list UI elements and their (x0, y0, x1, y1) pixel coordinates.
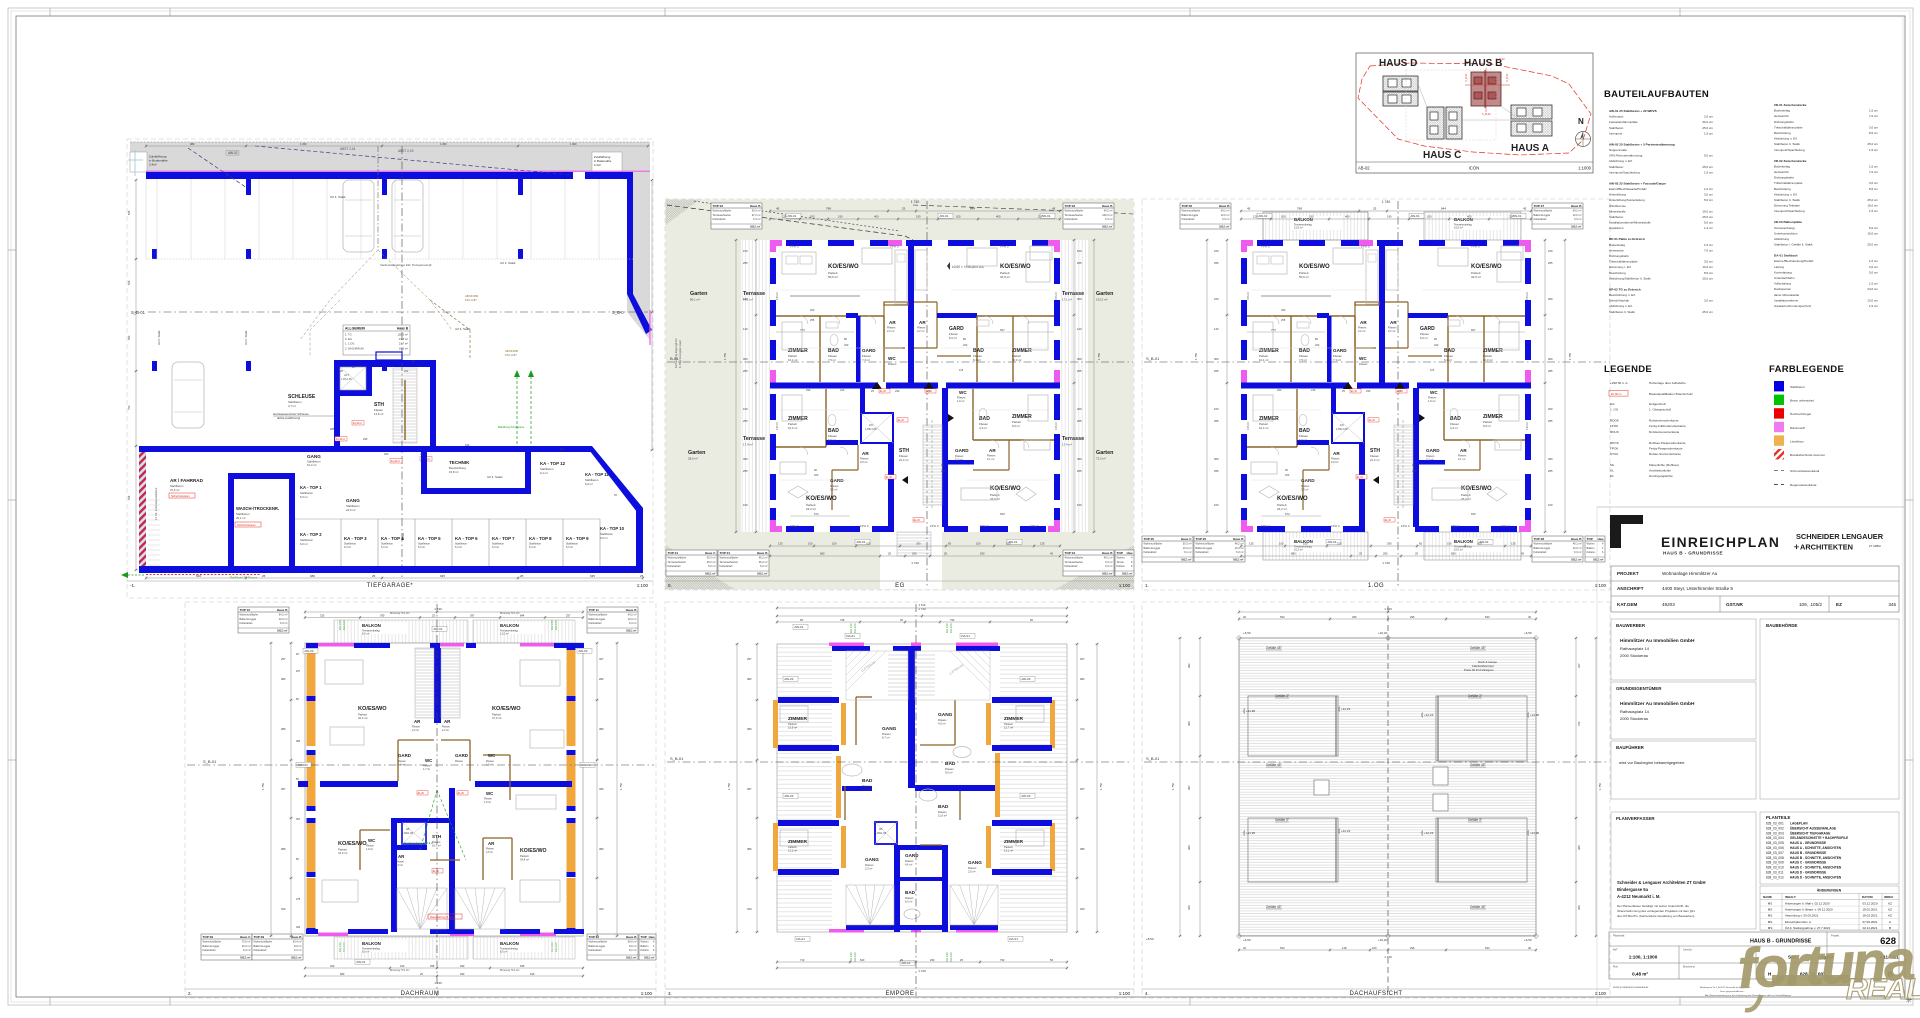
svg-text:6,3 m²: 6,3 m² (1236, 550, 1243, 554)
svg-text:LEGENDE: LEGENDE (1604, 364, 1652, 375)
svg-text:4.: 4. (1145, 991, 1149, 996)
svg-text:TOP 11: TOP 11 (589, 608, 600, 612)
svg-text:7,0 cm: 7,0 cm (1704, 248, 1714, 252)
svg-text:9,6 m²: 9,6 m² (1012, 424, 1020, 428)
svg-text:630: 630 (980, 552, 985, 556)
svg-text:320: 320 (1080, 907, 1085, 911)
svg-text:844: 844 (970, 207, 975, 211)
svg-text:Wohnanlage Himmlitzer Au: Wohnanlage Himmlitzer Au (1662, 571, 1718, 576)
svg-text:Innenputz/Spachtelung: Innenputz/Spachtelung (1774, 209, 1805, 213)
svg-text:Abdichtung/Stahlbeton lt. Stat: Abdichtung/Stahlbeton lt. Statik (1609, 276, 1651, 280)
svg-text:25: 25 (902, 207, 906, 211)
svg-text:625: 625 (127, 210, 131, 215)
svg-text:S_B-01: S_B-01 (1146, 756, 1160, 761)
svg-text:143: 143 (743, 327, 748, 331)
svg-text:148: 148 (1342, 946, 1347, 950)
svg-text:255: 255 (1214, 469, 1219, 473)
svg-text:Fassadendämmplatte: Fassadendämmplatte (1609, 120, 1638, 124)
svg-text:FPH 0: FPH 0 (1525, 422, 1529, 430)
svg-text:2,5 m²: 2,5 m² (968, 870, 975, 874)
svg-text:3.: 3. (668, 991, 672, 996)
svg-text:KA - TOP 4: KA - TOP 4 (381, 536, 404, 541)
svg-text:GELÄNDESCHNITTE + BACHPROFILE: GELÄNDESCHNITTE + BACHPROFILE (1790, 836, 1848, 840)
svg-text:40: 40 (1243, 946, 1246, 950)
svg-text:1,68x1,65: 1,68x1,65 (402, 832, 414, 835)
svg-text:EI₂30-C: EI₂30-C (336, 437, 345, 441)
svg-text:4,3 m²: 4,3 m² (1450, 426, 1458, 430)
svg-text:Haus B: Haus B (1571, 537, 1582, 541)
svg-text:FPH 0: FPH 0 (1246, 292, 1250, 300)
svg-text:1 750: 1 750 (1598, 783, 1602, 790)
svg-text:386: 386 (747, 847, 752, 851)
svg-text:EI₂30: EI₂30 (1369, 419, 1376, 422)
svg-text:722: 722 (1577, 721, 1581, 726)
svg-text:Gipskarton: Gipskarton (1609, 226, 1624, 230)
svg-text:INHALT: INHALT (1785, 895, 1796, 899)
svg-text:S_B-01: S_B-01 (670, 756, 684, 761)
svg-text:S_B-01: S_B-01 (1464, 73, 1468, 82)
svg-text:10,4 m²: 10,4 m² (1259, 426, 1269, 430)
svg-text:Abdichtung n. Erf.: Abdichtung n. Erf. (1774, 192, 1798, 196)
svg-text:Rathausplatz 14: Rathausplatz 14 (1620, 646, 1650, 651)
svg-text:Trittschalldämmplatte: Trittschalldämmplatte (1609, 260, 1638, 264)
svg-text:LB: LB (879, 827, 883, 831)
svg-text:135: 135 (1511, 542, 1516, 546)
svg-text:115: 115 (1430, 368, 1435, 372)
svg-text:290: 290 (912, 552, 917, 556)
svg-text:6,1 m²: 6,1 m² (973, 358, 981, 362)
svg-text:DL: DL (1610, 474, 1614, 478)
svg-text:HAUS D: HAUS D (1379, 58, 1417, 69)
svg-text:2000 Stockerau: 2000 Stockerau (1620, 653, 1648, 658)
svg-text:5,0 cm: 5,0 cm (1704, 154, 1714, 158)
svg-text:327: 327 (1577, 663, 1581, 668)
svg-text:285: 285 (330, 427, 335, 431)
svg-text:6,3 m²: 6,3 m² (1105, 564, 1112, 568)
svg-text:Brüstung H=1,0m: Brüstung H=1,0m (390, 969, 410, 972)
svg-text:7,0 cm: 7,0 cm (1869, 114, 1879, 118)
svg-text:6,0 m²: 6,0 m² (300, 495, 308, 499)
svg-text:Garten: Garten (690, 291, 707, 297)
svg-text:10,0 m²: 10,0 m² (1454, 548, 1463, 552)
svg-text:109, .105/2: 109, .105/2 (1799, 602, 1822, 607)
svg-text:26,0 m²: 26,0 m² (1461, 497, 1471, 501)
svg-text:Haus B: Haus B (1102, 204, 1113, 208)
svg-text:Haus B: Haus B (757, 551, 768, 555)
svg-text:5,0 cm: 5,0 cm (1869, 270, 1879, 274)
svg-text:290: 290 (895, 389, 900, 393)
svg-text:+12,23: +12,23 (1341, 829, 1351, 833)
svg-text:6,3 m²: 6,3 m² (1574, 550, 1581, 554)
svg-text:6,6 m²: 6,6 m² (1299, 438, 1307, 442)
svg-text:GANG: GANG (307, 454, 321, 459)
svg-text:Unterkonstruktion: Unterkonstruktion (1774, 231, 1798, 235)
svg-text:49,1 m²: 49,1 m² (1573, 542, 1582, 546)
svg-text:KO/ES/WO: KO/ES/WO (1000, 264, 1031, 270)
svg-text:FPH 0: FPH 0 (1261, 245, 1270, 249)
svg-text:DA-01: DA-01 (796, 937, 805, 941)
svg-text:Hinterlüftung/Konterlattung: Hinterlüftung/Konterlattung (1609, 198, 1645, 202)
svg-text:LIFT: LIFT (344, 373, 350, 377)
svg-text:5,0 cm: 5,0 cm (1869, 226, 1879, 230)
svg-text:N: N (1578, 117, 1584, 126)
svg-text:Durchgangslichte: Durchgangslichte (1649, 474, 1673, 478)
svg-text:6,0 m²: 6,0 m² (949, 336, 957, 340)
svg-text:Fliesen: Fliesen (1301, 484, 1310, 488)
svg-text:162,1 m²: 162,1 m² (1102, 572, 1113, 576)
svg-text:LAGEPLAN: LAGEPLAN (1790, 822, 1808, 826)
svg-text:2,0 cm: 2,0 cm (1704, 115, 1714, 119)
svg-text:Fliesen: Fliesen (1359, 362, 1368, 366)
svg-text:FPH 0: FPH 0 (1000, 245, 1009, 249)
svg-text:5,2 m²: 5,2 m² (955, 458, 962, 462)
svg-text:Wohnnutzfläche: Wohnnutzfläche (668, 556, 687, 560)
svg-text:Stahlbeton: Stahlbeton (1609, 165, 1624, 169)
svg-text:S_B-01: S_B-01 (1146, 356, 1160, 361)
svg-text:45,2 m²: 45,2 m² (707, 560, 716, 564)
svg-text:25: 25 (372, 574, 376, 578)
svg-text:2,2 m²: 2,2 m² (1388, 329, 1395, 333)
svg-text:Planinhalt: Planinhalt (1613, 934, 1625, 938)
svg-text:21,3 m²: 21,3 m² (899, 458, 909, 462)
svg-text:Fliesen: Fliesen (862, 784, 871, 788)
svg-text:1.OG: 1.OG (1368, 583, 1384, 589)
svg-text:EI₂30-C: EI₂30-C (391, 459, 400, 463)
svg-text:296: 296 (1352, 615, 1357, 619)
svg-text:6,3 m²: 6,3 m² (280, 621, 287, 625)
svg-text:490: 490 (1548, 457, 1553, 461)
svg-text:Kellerabteil: Kellerabteil (1182, 217, 1195, 221)
svg-text:HAUS D - GRUNDRISSE: HAUS D - GRUNDRISSE (1790, 871, 1826, 875)
svg-text:260: 260 (384, 452, 389, 456)
svg-text:FPH 0: FPH 0 (1401, 524, 1410, 528)
svg-text:162,1 m²: 162,1 m² (626, 629, 637, 633)
svg-text:7,5 m²: 7,5 m² (828, 358, 836, 362)
svg-text:162,1 m²: 162,1 m² (240, 956, 251, 960)
svg-text:530: 530 (127, 280, 131, 285)
svg-text:628_03_007: 628_03_007 (1766, 851, 1784, 855)
svg-text:Haus B: Haus B (397, 327, 409, 331)
svg-text:STUK: STUK (1610, 452, 1619, 456)
svg-text:KO/ES/WO: KO/ES/WO (338, 841, 367, 847)
svg-text:GARD: GARD (455, 753, 468, 758)
svg-text:0,48 m²: 0,48 m² (1632, 972, 1648, 977)
svg-text:KO/ES/WO: KO/ES/WO (990, 486, 1021, 492)
svg-text:+12,23: +12,23 (1341, 707, 1351, 711)
svg-text:400: 400 (874, 215, 879, 219)
svg-text:AW-03: AW-03 (1021, 794, 1030, 798)
svg-text:45: 45 (1052, 207, 1056, 211)
svg-text:672: 672 (1285, 512, 1290, 516)
svg-text:RH 2,00: RH 2,00 (949, 623, 953, 633)
svg-text:300: 300 (743, 357, 748, 361)
svg-text:12,0 m²: 12,0 m² (500, 632, 509, 636)
svg-text:162,1 m²: 162,1 m² (1571, 558, 1582, 562)
svg-text:630: 630 (196, 574, 201, 578)
svg-text:45: 45 (776, 207, 780, 211)
svg-text:Terrassenbelag: Terrassenbelag (1774, 226, 1795, 230)
svg-text:47,3 m²: 47,3 m² (492, 716, 502, 720)
svg-text:FPH 0: FPH 0 (790, 245, 799, 249)
svg-text:FPH 0: FPH 0 (980, 524, 989, 528)
svg-text:290: 290 (363, 437, 368, 441)
svg-text:WC: WC (425, 758, 433, 763)
svg-text:100: 100 (976, 542, 981, 546)
svg-text:300: 300 (1214, 457, 1219, 461)
svg-text:66,6 m²: 66,6 m² (628, 940, 637, 944)
svg-text:2,2 m²: 2,2 m² (917, 329, 924, 333)
svg-text:AW-01 25 Stahlbeton + 20 WDV: AW-01 25 Stahlbeton + 20 WDVS (1609, 109, 1657, 113)
svg-text:ICON: ICON (1469, 166, 1479, 171)
svg-text:680: 680 (820, 552, 825, 556)
svg-text:635: 635 (590, 574, 595, 578)
svg-text:8,1 m²: 8,1 m² (629, 948, 636, 952)
svg-text:59,3 m²: 59,3 m² (752, 209, 761, 213)
svg-text:Konterlattung: Konterlattung (1774, 270, 1792, 274)
svg-text:4,6 m²: 4,6 m² (905, 863, 912, 867)
svg-text:6,3 m²: 6,3 m² (418, 546, 425, 549)
svg-text:45: 45 (1523, 207, 1527, 211)
svg-text:MS: MS (1768, 926, 1773, 930)
svg-text:Robau-Sturzunterkante: Robau-Sturzunterkante (1649, 452, 1681, 456)
svg-text:2. DACHRAUM: 2. DACHRAUM (345, 346, 364, 350)
svg-text:1 740: 1 740 (1382, 561, 1390, 565)
svg-text:1 360: 1 360 (440, 142, 447, 146)
svg-text:780: 780 (380, 614, 385, 618)
svg-text:26,0 m²: 26,0 m² (990, 497, 1000, 501)
svg-text:Parkett: Parkett (788, 845, 797, 849)
svg-text:GARD: GARD (1426, 448, 1440, 453)
svg-text:AR: AR (488, 841, 495, 846)
svg-text:Hau: Hau (1127, 551, 1133, 555)
svg-text:Balkon/Loggia: Balkon/Loggia (1534, 546, 1551, 550)
svg-text:367: 367 (1080, 787, 1085, 791)
svg-text:300: 300 (810, 308, 815, 312)
svg-text:Lift: Lift (869, 423, 873, 427)
svg-text:BAD: BAD (905, 890, 916, 895)
svg-text:Hinterlüftung: Hinterlüftung (1609, 193, 1626, 197)
svg-text:100: 100 (1214, 503, 1219, 507)
svg-text:1 750: 1 750 (1194, 353, 1198, 360)
svg-text:EI₂30-C: EI₂30-C (353, 421, 362, 425)
svg-text:162,1 m²: 162,1 m² (644, 956, 655, 960)
svg-text:Estrich/Asphalt: Estrich/Asphalt (1609, 299, 1629, 303)
svg-text:9,1 m²: 9,1 m² (540, 471, 548, 475)
svg-text:BP-01 Platte zu Erdreich: BP-01 Platte zu Erdreich (1609, 237, 1645, 241)
svg-text:EI₂30: EI₂30 (898, 419, 905, 422)
svg-text:Wohnnutzfläche: Wohnnutzfläche (713, 209, 732, 213)
svg-text:KZ: KZ (1888, 914, 1892, 918)
svg-text:EG: EG (1610, 402, 1615, 406)
svg-text:100: 100 (743, 297, 748, 301)
svg-text:FPH 0: FPH 0 (890, 245, 899, 249)
svg-text:49,1 m²: 49,1 m² (1104, 556, 1113, 560)
svg-text:1,3 cm: 1,3 cm (1704, 226, 1714, 230)
svg-text:21,7 m²: 21,7 m² (399, 342, 408, 346)
svg-text:Kellerabteil: Kellerabteil (720, 564, 733, 568)
svg-text:HAUS A: HAUS A (1511, 143, 1549, 154)
svg-text:TOP 07: TOP 07 (1534, 204, 1545, 208)
svg-text:AW-01: AW-01 (856, 540, 865, 544)
svg-text:Fliesen: Fliesen (888, 362, 897, 366)
svg-text:Bodenbelag: Bodenbelag (1609, 243, 1625, 247)
svg-text:Fliesen: Fliesen (1331, 457, 1340, 461)
svg-text:18.03.2021: 18.03.2021 (1862, 914, 1877, 918)
svg-text:Kellerabteil: Kellerabteil (1534, 217, 1547, 221)
svg-text:Innenputz/Spachtelung: Innenputz/Spachtelung (1774, 148, 1805, 152)
svg-text:+12,23: +12,23 (1424, 831, 1434, 835)
svg-text:115: 115 (959, 368, 964, 372)
svg-text:9,6 m²: 9,6 m² (1483, 424, 1491, 428)
svg-text:1,5 cm: 1,5 cm (1704, 243, 1714, 247)
svg-text:628_03_003: 628_03_003 (1766, 831, 1784, 835)
svg-text:RH 1,50: RH 1,50 (849, 623, 853, 633)
svg-text:190: 190 (916, 215, 921, 219)
svg-text:24,9 m²: 24,9 m² (346, 508, 356, 512)
svg-text:Gezeich.: Gezeich. (1683, 949, 1693, 952)
svg-text:255: 255 (743, 469, 748, 473)
svg-text:KZ: KZ (1888, 908, 1892, 912)
svg-text:Terrasse: Terrasse (1062, 436, 1084, 442)
svg-text:18.02.2021: 18.02.2021 (1862, 908, 1877, 912)
svg-text:MS: MS (1768, 914, 1773, 918)
svg-text:6,0 m²: 6,0 m² (905, 900, 912, 904)
svg-text:200: 200 (963, 343, 968, 347)
svg-text:1,65x1,65: 1,65x1,65 (341, 378, 352, 381)
svg-text:320: 320 (1187, 905, 1191, 910)
svg-text:768: 768 (826, 207, 831, 211)
svg-text:ZIMMER: ZIMMER (1004, 839, 1023, 845)
svg-text:RH 2,00: RH 2,00 (342, 620, 346, 630)
svg-text:FPH 0: FPH 0 (860, 524, 869, 528)
svg-text:Kellera: Kellera (641, 948, 650, 952)
svg-text:202: 202 (404, 369, 409, 373)
svg-text:Brüstung H=1,0m: Brüstung H=1,0m (500, 969, 520, 972)
svg-text:HAUS B - SCHNITTE, ANSICHTEN: HAUS B - SCHNITTE, ANSICHTEN (1790, 856, 1842, 860)
svg-text:Gefälle 45°: Gefälle 45° (1470, 646, 1487, 650)
svg-text:2,4m²: 2,4m² (149, 163, 157, 167)
svg-text:+10,20: +10,20 (1378, 938, 1388, 942)
svg-text:64,2 m²: 64,2 m² (1221, 209, 1230, 213)
svg-text:15,0 cm: 15,0 cm (1867, 231, 1878, 235)
svg-text:45: 45 (1521, 552, 1524, 556)
svg-text:162,1 m²: 162,1 m² (1571, 225, 1582, 229)
svg-text:17,4 m²: 17,4 m² (743, 443, 753, 447)
svg-text:7,3 m²: 7,3 m² (862, 358, 870, 362)
svg-text:9,0 m²: 9,0 m² (945, 771, 953, 775)
svg-text:KA - TOP 6: KA - TOP 6 (455, 536, 478, 541)
svg-text:255: 255 (1281, 318, 1286, 322)
svg-text:TOP 10: TOP 10 (240, 608, 251, 612)
svg-text:Wohnnutzfläche: Wohnnutzfläche (1182, 209, 1201, 213)
svg-text:190: 190 (1309, 215, 1314, 219)
svg-text:12,0 m²: 12,0 m² (1294, 226, 1303, 230)
svg-text:10,1 m²: 10,1 m² (1259, 358, 1269, 362)
svg-text:50,3 m²: 50,3 m² (707, 556, 716, 560)
svg-text:DATUM: DATUM (1862, 895, 1873, 899)
svg-text:65: 65 (948, 542, 951, 546)
svg-text:12,0 m²: 12,0 m² (628, 617, 637, 621)
svg-text:Dichtungsbahn: Dichtungsbahn (1774, 176, 1794, 180)
svg-text:Beschüttung: Beschüttung (1774, 187, 1791, 191)
svg-text:Hau: Hau (1598, 537, 1604, 541)
svg-text:wird vor Baubeginn bekanntgege: wird vor Baubeginn bekanntgegeben. (1619, 760, 1685, 765)
svg-text:Abdichtung n. Erf.: Abdichtung n. Erf. (1609, 304, 1633, 308)
svg-text:535: 535 (127, 495, 131, 500)
svg-text:Trittschalldämmplatte: Trittschalldämmplatte (1774, 181, 1803, 185)
svg-text:Balkon/Loggia: Balkon/Loggia (1182, 213, 1199, 217)
svg-text:FPH 0: FPH 0 (775, 422, 779, 430)
svg-text:680: 680 (1291, 552, 1296, 556)
svg-text:Kellerabteil: Kellerabteil (1065, 564, 1078, 568)
svg-text:25,0 cm: 25,0 cm (1867, 198, 1878, 202)
svg-text:GANG: GANG (865, 857, 879, 862)
svg-text:Kellerabteil: Kellerabteil (1196, 550, 1209, 554)
svg-text:1 300: 1 300 (570, 142, 577, 146)
svg-text:25,0 cm: 25,0 cm (1702, 126, 1713, 130)
svg-text:UZ lt. Statik: UZ lt. Statik (487, 475, 503, 479)
svg-text:Beton unbewohnt: Beton unbewohnt (1790, 399, 1814, 403)
svg-text:128,5 m²: 128,5 m² (397, 333, 408, 337)
svg-text:Windbremse: Windbremse (1609, 204, 1626, 208)
svg-text:10,3 m²: 10,3 m² (242, 944, 251, 948)
svg-text:BALKON: BALKON (1454, 539, 1473, 544)
svg-text:Rohbau-Parapetoberkante: Rohbau-Parapetoberkante (1649, 441, 1686, 445)
svg-text:200: 200 (941, 469, 946, 473)
svg-text:1,5 cm: 1,5 cm (1869, 304, 1879, 308)
svg-text:11,6 m²: 11,6 m² (938, 814, 947, 818)
svg-text:6,3 m²: 6,3 m² (455, 546, 462, 549)
svg-text:296: 296 (1410, 615, 1415, 619)
svg-text:1 750: 1 750 (261, 783, 265, 790)
svg-text:162,1 m²: 162,1 m² (626, 956, 637, 960)
svg-text:200: 200 (1412, 469, 1417, 473)
svg-text:34,8 m²: 34,8 m² (520, 858, 529, 862)
svg-text:1 750: 1 750 (1171, 783, 1175, 790)
svg-text:40: 40 (1528, 615, 1531, 619)
svg-text:1,0 cm: 1,0 cm (1869, 259, 1879, 263)
svg-text:72,3 m²: 72,3 m² (1096, 457, 1106, 461)
svg-text:Beschüttung: Beschüttung (1609, 271, 1626, 275)
svg-text:Balkon/Loggia: Balkon/Loggia (589, 617, 606, 621)
svg-text:FFOK: FFOK (1610, 424, 1619, 428)
svg-text:GANG: GANG (882, 726, 897, 732)
svg-text:1,5 cm: 1,5 cm (1869, 209, 1879, 213)
svg-text:380: 380 (1577, 845, 1581, 850)
svg-text:12,2 m²: 12,2 m² (788, 849, 797, 853)
svg-text:BAD: BAD (938, 804, 949, 810)
svg-text:Dichtungsbahn: Dichtungsbahn (1609, 254, 1629, 258)
svg-text:ALLGEMEIN: ALLGEMEIN (345, 327, 366, 331)
svg-text:AW-01: AW-01 (1327, 540, 1336, 544)
svg-text:6,3 m²: 6,3 m² (1222, 217, 1229, 221)
svg-text:+11,95: +11,95 (1530, 713, 1539, 717)
svg-text:MS: MS (1768, 902, 1773, 906)
svg-text:3,0 cm: 3,0 cm (1869, 265, 1879, 269)
svg-text:6,3 m²: 6,3 m² (492, 546, 499, 549)
svg-text:Terrasse: Terrasse (1062, 291, 1084, 297)
svg-text:Installationsebene/Mineralwoll: Installationsebene/Mineralwolle (1609, 221, 1651, 225)
svg-text:7,0 cm: 7,0 cm (1869, 170, 1879, 174)
svg-text:Terrasse/Garten: Terrasse/Garten (1065, 213, 1084, 217)
svg-text:RettFlucht TG-Räume: RettFlucht TG-Räume (230, 576, 258, 580)
svg-text:49203: 49203 (1662, 602, 1675, 607)
svg-text:216: 216 (1311, 388, 1316, 392)
svg-text:Dämmstoff: Dämmstoff (1790, 426, 1805, 430)
svg-text:3,0 cm: 3,0 cm (1869, 125, 1879, 129)
svg-text:WASCH-/TROCKENR.: WASCH-/TROCKENR. (236, 506, 279, 511)
svg-text:533: 533 (1280, 946, 1285, 950)
